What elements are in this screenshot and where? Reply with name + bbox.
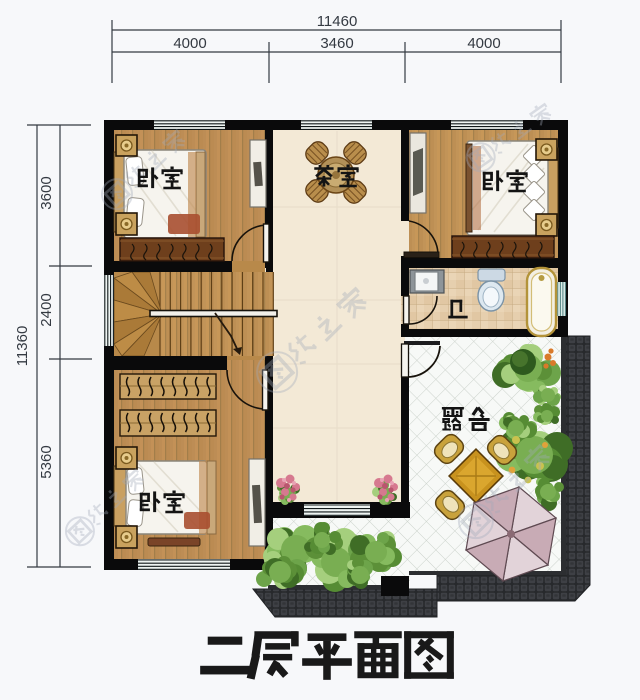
svg-text:3460: 3460 bbox=[320, 35, 353, 52]
svg-text:11360: 11360 bbox=[14, 326, 31, 367]
svg-text:11460: 11460 bbox=[317, 13, 358, 30]
svg-text:5360: 5360 bbox=[38, 445, 55, 478]
svg-text:2400: 2400 bbox=[38, 293, 55, 326]
svg-text:3600: 3600 bbox=[38, 176, 55, 209]
svg-text:4000: 4000 bbox=[467, 35, 500, 52]
svg-text:4000: 4000 bbox=[173, 35, 206, 52]
